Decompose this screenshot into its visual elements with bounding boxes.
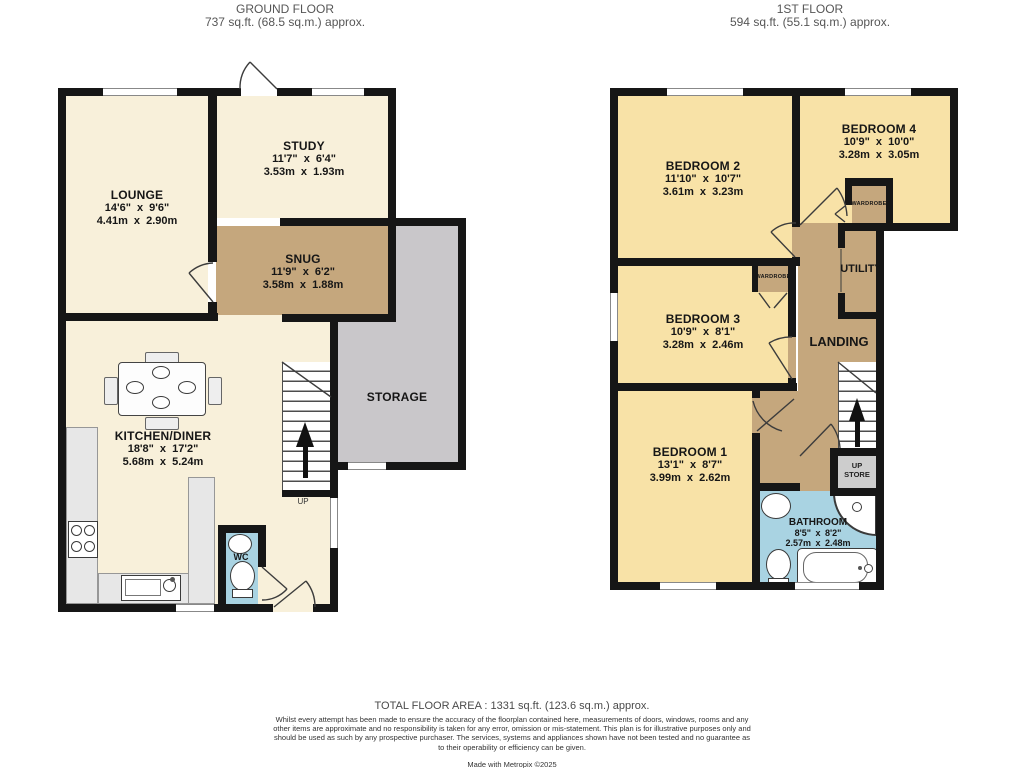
wc-toilet-cistern-icon: [232, 589, 253, 598]
front-door-opening: [241, 88, 277, 96]
ground-floor-title: GROUND FLOOR 737 sq.ft. (68.5 sq.m.) app…: [205, 3, 365, 29]
stove-burner-icon: [71, 541, 82, 552]
wall: [610, 258, 792, 266]
door-opening: [752, 398, 760, 433]
place-setting-icon: [126, 381, 144, 394]
room-landing: [798, 223, 838, 319]
wall: [792, 96, 800, 227]
bathroom-label: BATHROOM 8'5" x 8'2" 2.57m x 2.48m: [785, 517, 850, 548]
wall: [388, 218, 466, 226]
wall: [950, 88, 958, 231]
place-setting-icon: [152, 366, 170, 379]
total-floor-area: TOTAL FLOOR AREA : 1331 sq.ft. (123.6 sq…: [375, 700, 650, 712]
wall: [838, 223, 958, 231]
stove-burner-icon: [84, 541, 95, 552]
wardrobe-label: WARDROBE: [851, 201, 886, 207]
door-opening: [788, 337, 796, 378]
kitchen-counter: [188, 477, 215, 604]
wall: [282, 490, 330, 497]
bedroom-2-label: BEDROOM 2 11'10" x 10'7" 3.61m x 3.23m: [663, 160, 744, 199]
window: [845, 88, 911, 96]
wc-toilet-icon: [230, 561, 255, 591]
bath-faucet-icon: [858, 566, 862, 570]
wall: [610, 383, 797, 391]
door-panel: [250, 62, 277, 89]
wall: [218, 525, 226, 612]
kitchen-counter: [66, 427, 98, 604]
shower-head-icon: [852, 502, 862, 512]
wall: [876, 223, 884, 590]
snug-label: SNUG 11'9" x 6'2" 3.58m x 1.88m: [263, 253, 344, 292]
bathroom-toilet-icon: [766, 549, 791, 580]
wall: [830, 448, 884, 456]
wall: [458, 218, 466, 470]
wall: [830, 488, 884, 496]
bedroom-4-label: BEDROOM 4 10'9" x 10'0" 3.28m x 3.05m: [839, 123, 920, 162]
bedroom-3-label: BEDROOM 3 10'9" x 8'1" 3.28m x 2.46m: [663, 313, 744, 352]
disclaimer: Whilst every attempt has been made to en…: [273, 715, 751, 752]
kitchen-diner-label: KITCHEN/DINER 18'8" x 17'2" 5.68m x 5.24…: [115, 430, 212, 469]
stove-burner-icon: [71, 525, 82, 536]
room-landing: [760, 391, 830, 483]
up-label: UP: [297, 497, 308, 506]
window: [348, 462, 386, 470]
floorplan-canvas: GROUND FLOOR 737 sq.ft. (68.5 sq.m.) app…: [0, 0, 1024, 768]
place-setting-icon: [178, 381, 196, 394]
wall: [280, 218, 396, 226]
wall: [208, 88, 217, 262]
window: [660, 582, 716, 590]
door-arc: [240, 62, 250, 89]
chair-icon: [208, 377, 222, 405]
wall: [886, 178, 893, 223]
window: [667, 88, 743, 96]
first-floor-title: 1ST FLOOR 594 sq.ft. (55.1 sq.m.) approx…: [730, 3, 890, 29]
study-label: STUDY 11'7" x 6'4" 3.53m x 1.93m: [264, 140, 345, 179]
wall: [788, 258, 796, 337]
wardrobe-label: WARDROBE: [755, 274, 790, 280]
bathroom-sink-icon: [761, 493, 791, 519]
landing-label: LANDING: [809, 334, 868, 349]
wall: [58, 313, 218, 321]
room-storage: [396, 226, 458, 322]
sink-drainer-icon: [125, 579, 161, 596]
chair-icon: [104, 377, 118, 405]
stairs-ground: [282, 362, 330, 490]
wall: [752, 391, 760, 398]
utility-label: UTILITY: [840, 263, 882, 275]
stove-burner-icon: [84, 525, 95, 536]
window: [330, 498, 338, 548]
room-bedroom-1: [618, 391, 752, 582]
wall: [752, 433, 760, 590]
window: [176, 604, 214, 612]
wall: [388, 88, 396, 322]
wall: [58, 88, 66, 612]
bath-faucet-icon: [864, 564, 873, 573]
wall: [258, 525, 266, 567]
wc-label: WC: [234, 552, 249, 562]
up-store-label: UP STORE: [844, 461, 870, 479]
window: [312, 88, 364, 96]
door-opening: [800, 483, 830, 491]
storage-label: STORAGE: [367, 391, 428, 404]
stairs-first: [838, 362, 876, 448]
wall: [282, 314, 396, 322]
bedroom-1-label: BEDROOM 1 13'1" x 8'7" 3.99m x 2.62m: [650, 446, 731, 485]
wc-sink-icon: [228, 534, 252, 554]
window: [610, 293, 618, 341]
wall: [752, 483, 800, 491]
wall: [838, 312, 884, 319]
place-setting-icon: [152, 396, 170, 409]
window: [795, 582, 859, 590]
window: [103, 88, 177, 96]
credit: Made with Metropix ©2025: [467, 760, 556, 768]
lounge-label: LOUNGE 14'6" x 9'6" 4.41m x 2.90m: [97, 189, 178, 228]
faucet-icon: [170, 577, 175, 582]
wall: [838, 227, 845, 248]
back-door-opening: [273, 604, 313, 612]
